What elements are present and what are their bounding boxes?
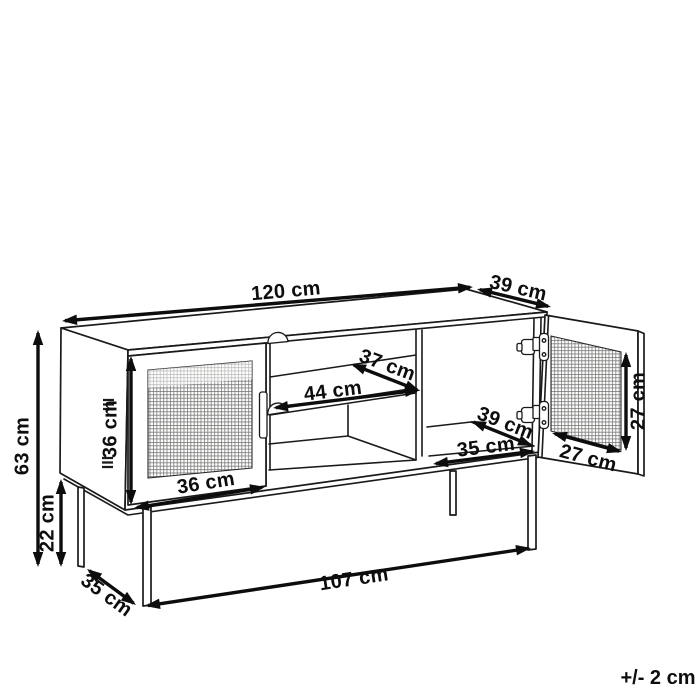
back-right-leg (450, 471, 456, 515)
dimension-label-total-height: 63 cm (11, 417, 33, 475)
dimension-label-base-width: 107 cm (318, 563, 390, 595)
dimension-label-door-height: 36 cm (99, 400, 121, 458)
sideboard-line-drawing: 120 cm39 cm63 cm22 cm36 cm36 cm44 cm37 c… (0, 0, 700, 700)
dimension-base-width: 107 cm (145, 545, 531, 609)
door-handle (260, 392, 268, 438)
dimension-label-right-door-height: 27 cm (627, 372, 649, 430)
front-left-leg (143, 507, 151, 606)
dimension-base-depth: 35 cm (76, 569, 136, 621)
back-left-leg (78, 487, 84, 567)
front-right-leg (528, 455, 536, 550)
furniture-dimension-diagram: 120 cm39 cm63 cm22 cm36 cm36 cm44 cm37 c… (0, 0, 700, 700)
tolerance-note: +/- 2 cm (620, 667, 695, 689)
dimension-label-leg-height: 22 cm (36, 494, 58, 552)
